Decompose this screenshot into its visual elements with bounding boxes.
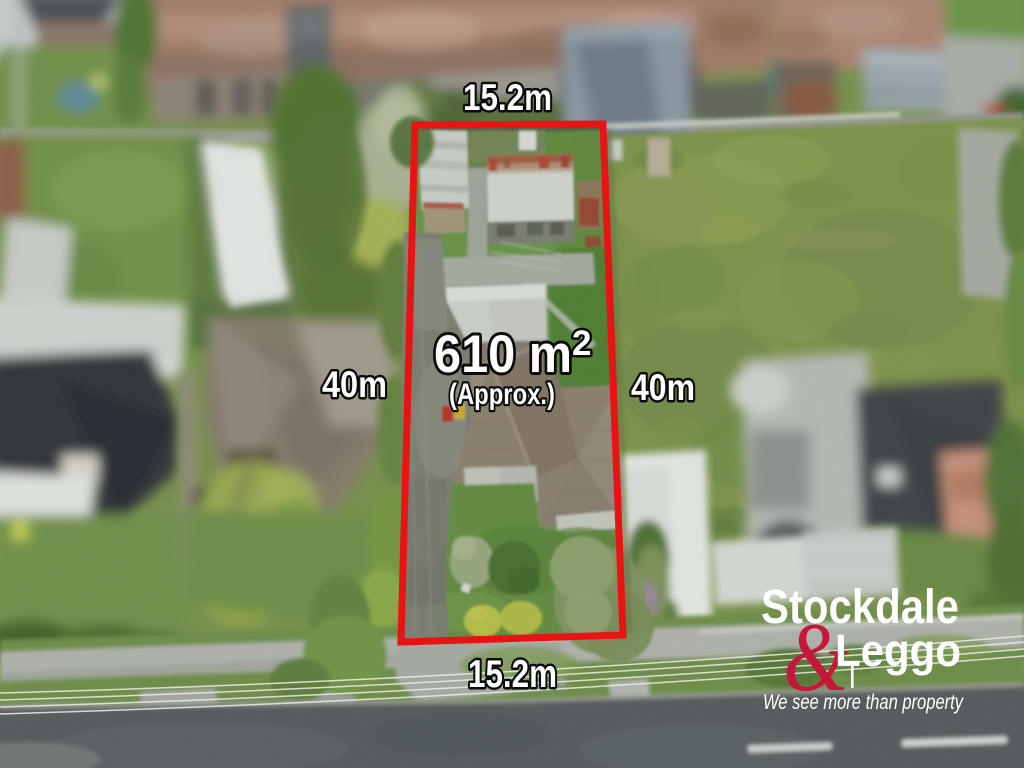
svg-text:15.2m: 15.2m	[463, 77, 552, 118]
svg-text:Leggo: Leggo	[835, 625, 961, 676]
svg-text:610 m: 610 m	[434, 325, 572, 384]
svg-text:(Approx.): (Approx.)	[449, 378, 555, 411]
svg-text:We see more than property: We see more than property	[763, 691, 964, 714]
svg-text:2: 2	[572, 324, 591, 363]
svg-text:15.2m: 15.2m	[468, 653, 557, 696]
svg-text:40m: 40m	[631, 367, 695, 408]
svg-text:40m: 40m	[322, 364, 387, 405]
